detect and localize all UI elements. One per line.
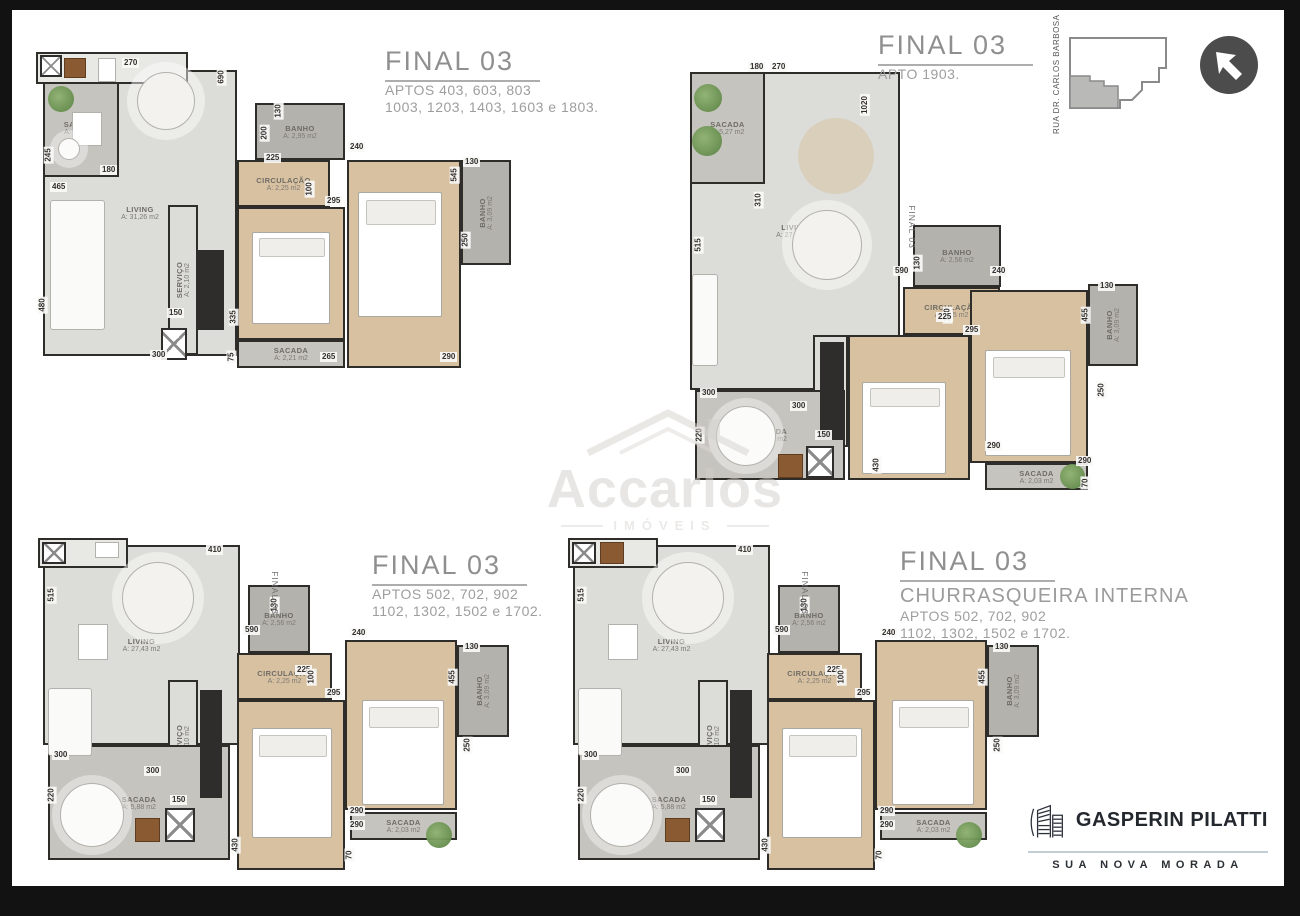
sofa-symbol: [692, 274, 718, 366]
room-area: A: 5,88 m2: [652, 804, 686, 811]
bed-symbol: [892, 700, 974, 805]
dining-symbol: [122, 562, 194, 634]
bed-symbol: [358, 192, 442, 317]
grill-symbol: [600, 542, 624, 564]
room-circulacao: CIRCULAÇÃOA: 2,25 m2: [237, 160, 330, 207]
dimension-label: 130: [274, 102, 284, 119]
room-banho: BANHOA: 2,56 m2: [913, 225, 1001, 287]
dimension-label: 410: [736, 545, 753, 555]
plan-title-feature: CHURRASQUEIRA INTERNA: [900, 585, 1189, 608]
room-area: A: 2,03 m2: [916, 827, 950, 834]
plan-title-sub: APTOS 502, 702, 902: [372, 586, 543, 603]
dimension-label: 225: [936, 312, 953, 322]
plan-title-a: FINAL 03APTOS 403, 603, 8031003, 1203, 1…: [385, 46, 599, 115]
dimension-label: 130: [463, 642, 480, 652]
dimension-label: 240: [348, 142, 365, 152]
grill-symbol: [665, 818, 690, 842]
street-label: RUA DR. CARLOS BARBOSA: [1052, 15, 1061, 134]
box-symbol: [78, 624, 108, 660]
wall-label: FINAL 03: [907, 205, 917, 249]
dimension-label: 455: [1081, 306, 1091, 323]
dimension-label: 515: [694, 236, 704, 253]
dimension-label: 70: [874, 849, 884, 862]
room-name: SACADA: [652, 795, 686, 804]
building-icon: [1028, 796, 1068, 844]
dining-symbol: [137, 72, 195, 130]
rtable-symbol: [58, 138, 80, 160]
room-name: CIRCULAÇÃO: [256, 176, 310, 185]
rtable-symbol: [590, 783, 654, 847]
dimension-label: 455: [448, 668, 458, 685]
dimension-label: 590: [893, 266, 910, 276]
dimension-label: 455: [978, 668, 988, 685]
plan-title-d: FINAL 03CHURRASQUEIRA INTERNAAPTOS 502, …: [900, 546, 1189, 641]
room-area: A: 2,25 m2: [256, 185, 310, 192]
room-banho: BANHOA: 3,09 m2: [461, 160, 511, 265]
room-area: A: 2,56 m2: [792, 620, 826, 627]
dimension-label: 300: [674, 766, 691, 776]
rtable-symbol: [60, 783, 124, 847]
dimension-label: 250: [463, 736, 473, 753]
room-area: A: 3,09 m2: [484, 674, 491, 708]
dimension-label: 70: [344, 849, 354, 862]
room-area: A: 2,56 m2: [262, 620, 296, 627]
dimension-label: 240: [350, 628, 367, 638]
room-area: A: 5,88 m2: [122, 804, 156, 811]
brand-tagline: SUA NOVA MORADA: [1028, 859, 1268, 871]
dimension-label: 130: [913, 254, 923, 271]
plant-symbol: [956, 822, 982, 848]
dimension-label: 225: [264, 153, 281, 163]
dimension-label: 295: [855, 688, 872, 698]
canvas: Accarlos IMÓVEIS RUA DR. CARLOS BARBOSA: [0, 0, 1300, 916]
dimension-label: 150: [815, 430, 832, 440]
dimension-label: 150: [700, 795, 717, 805]
plan-title-sub: APTOS 403, 603, 803: [385, 82, 599, 99]
room-area: A: 27,43 m2: [653, 646, 691, 653]
building-footprint-icon: [1068, 36, 1172, 128]
room-area: A: 3,09 m2: [1014, 674, 1021, 708]
plan-title-main: FINAL 03: [372, 550, 527, 586]
brand-name: GASPERIN PILATTI: [1076, 809, 1268, 832]
dimension-label: 295: [963, 325, 980, 335]
room-area: A: 2,95 m2: [283, 133, 317, 140]
room-circulacao: CIRCULAÇÃOA: 2,25 m2: [237, 653, 332, 700]
dimension-label: 130: [463, 157, 480, 167]
dimension-label: 515: [47, 586, 57, 603]
dimension-label: 430: [761, 836, 771, 853]
dimension-label: 290: [878, 820, 895, 830]
dimension-label: 130: [1098, 281, 1115, 291]
north-arrow-icon: [1198, 34, 1260, 96]
brand-divider: [1028, 851, 1268, 853]
dimension-label: 300: [144, 766, 161, 776]
grill-symbol: [64, 58, 86, 78]
room-area: A: 3,09 m2: [1114, 308, 1121, 342]
dimension-label: 1020: [860, 94, 870, 116]
dimension-label: 690: [217, 68, 227, 85]
room-name: SACADA: [274, 346, 308, 355]
counter-symbol: [200, 690, 222, 798]
dimension-label: 220: [47, 786, 57, 803]
dimension-label: 220: [577, 786, 587, 803]
room-name: LIVING: [123, 637, 161, 646]
dimension-label: 245: [44, 146, 54, 163]
elevator-symbol: [40, 55, 62, 77]
dimension-label: 250: [993, 736, 1003, 753]
bed-symbol: [782, 728, 862, 838]
dimension-label: 265: [320, 352, 337, 362]
dimension-label: 300: [700, 388, 717, 398]
box-symbol: [98, 58, 116, 82]
room-name: BANHO: [283, 124, 317, 133]
wall-label: FINAL 03: [800, 571, 810, 615]
dimension-label: 410: [206, 545, 223, 555]
elevator-symbol: [165, 808, 195, 842]
keyplan: RUA DR. CARLOS BARBOSA: [1046, 22, 1286, 137]
room-area: A: 3,09 m2: [487, 196, 494, 230]
brand-logo: GASPERIN PILATTI SUA NOVA MORADA: [1028, 796, 1268, 871]
grill-symbol: [778, 454, 803, 478]
dimension-label: 290: [440, 352, 457, 362]
elevator-symbol: [572, 542, 596, 564]
box-symbol: [95, 542, 119, 558]
plan-title-sub: APTO 1903.: [878, 66, 1033, 83]
dimension-label: 290: [348, 820, 365, 830]
room-banho: BANHOA: 3,09 m2: [457, 645, 509, 737]
room-name: SACADA: [1019, 469, 1053, 478]
room-name: BANHO: [1105, 308, 1114, 342]
dimension-label: 300: [582, 750, 599, 760]
room-area: A: 2,25 m2: [787, 678, 841, 685]
dimension-label: 310: [754, 191, 764, 208]
plant-symbol: [694, 84, 722, 112]
dimension-label: 270: [122, 58, 139, 68]
dimension-label: 150: [170, 795, 187, 805]
dimension-label: 180: [748, 62, 765, 72]
room-name: BANHO: [478, 196, 487, 230]
room-area: A: 2,56 m2: [940, 257, 974, 264]
rtable-symbol: [716, 406, 776, 466]
room-name: BANHO: [475, 674, 484, 708]
plan-title-sub: APTOS 502, 702, 902: [900, 608, 1189, 625]
dimension-label: 590: [773, 625, 790, 635]
grill-symbol: [135, 818, 160, 842]
elevator-symbol: [695, 808, 725, 842]
room-name: BANHO: [1005, 674, 1014, 708]
plan-title-sub: 1102, 1302, 1502 e 1702.: [372, 603, 543, 620]
room-name: SERVIÇO: [175, 262, 184, 298]
dimension-label: 75: [226, 351, 236, 364]
room-area: A: 2,21 m2: [274, 355, 308, 362]
dimension-label: 480: [38, 296, 48, 313]
room-area: A: 2,10 m2: [184, 262, 191, 298]
dimension-label: 180: [100, 165, 117, 175]
dimension-label: 270: [770, 62, 787, 72]
dimension-label: 295: [325, 688, 342, 698]
dimension-label: 150: [167, 308, 184, 318]
dimension-label: 515: [577, 586, 587, 603]
dimension-label: 335: [229, 308, 239, 325]
dimension-label: 100: [305, 180, 315, 197]
sofa-symbol: [50, 200, 105, 330]
plant-symbol: [426, 822, 452, 848]
dimension-label: 545: [450, 166, 460, 183]
dining-symbol: [652, 562, 724, 634]
room-circulacao: CIRCULAÇÃOA: 2,25 m2: [767, 653, 862, 700]
plan-title-main: FINAL 03: [900, 546, 1055, 582]
plant-symbol: [692, 126, 722, 156]
elevator-symbol: [42, 542, 66, 564]
room-area: A: 27,43 m2: [123, 646, 161, 653]
room-area: A: 2,25 m2: [257, 678, 311, 685]
dimension-label: 220: [695, 426, 705, 443]
room-area: A: 2,03 m2: [386, 827, 420, 834]
room-name: SACADA: [386, 818, 420, 827]
dimension-label: 295: [325, 196, 342, 206]
plan-title-b: FINAL 03APTO 1903.: [878, 30, 1033, 83]
counter-symbol: [730, 690, 752, 798]
dimension-label: 590: [243, 625, 260, 635]
plan-title-main: FINAL 03: [385, 46, 540, 82]
dimension-label: 130: [993, 642, 1010, 652]
plan-title-main: FINAL 03: [878, 30, 1033, 66]
dimension-label: 200: [260, 124, 270, 141]
dimension-label: 100: [837, 668, 847, 685]
bed-symbol: [252, 728, 332, 838]
dimension-label: 240: [990, 266, 1007, 276]
dimension-label: 300: [52, 750, 69, 760]
dimension-label: 290: [878, 806, 895, 816]
dimension-label: 290: [985, 441, 1002, 451]
counter-symbol: [820, 342, 844, 440]
room-name: LIVING: [121, 205, 159, 214]
dimension-label: 300: [150, 350, 167, 360]
room-name: LIVING: [653, 637, 691, 646]
bed-symbol: [362, 700, 444, 805]
sofa-symbol: [578, 688, 622, 756]
dimension-label: 290: [348, 806, 365, 816]
wall-label: FINAL 03: [270, 571, 280, 615]
bed-symbol: [252, 232, 330, 324]
counter-symbol: [198, 250, 224, 330]
dimension-label: 290: [1076, 456, 1093, 466]
plant-symbol: [48, 86, 74, 112]
dimension-label: 250: [1097, 381, 1107, 398]
room-area: A: 2,03 m2: [1019, 478, 1053, 485]
watermark-subtitle: IMÓVEIS: [545, 518, 785, 533]
elevator-symbol: [806, 446, 834, 478]
dimension-label: 430: [872, 456, 882, 473]
dining-symbol: [792, 210, 862, 280]
plan-title-sub: 1003, 1203, 1403, 1603 e 1803.: [385, 99, 599, 116]
room-banho: BANHOA: 3,09 m2: [1088, 284, 1138, 366]
dimension-label: 430: [231, 836, 241, 853]
room-banho: BANHOA: 3,09 m2: [987, 645, 1039, 737]
dimension-label: 465: [50, 182, 67, 192]
dimension-label: 70: [1080, 477, 1090, 490]
dimension-label: 100: [307, 668, 317, 685]
sofa-symbol: [48, 688, 92, 756]
room-area: A: 31,26 m2: [121, 214, 159, 221]
dimension-label: 300: [790, 401, 807, 411]
room-name: SACADA: [916, 818, 950, 827]
rug-symbol: [798, 118, 874, 194]
room-name: SACADA: [122, 795, 156, 804]
dimension-label: 240: [880, 628, 897, 638]
plan-title-c: FINAL 03APTOS 502, 702, 9021102, 1302, 1…: [372, 550, 543, 619]
room-name: BANHO: [940, 248, 974, 257]
box-symbol: [608, 624, 638, 660]
dimension-label: 250: [461, 231, 471, 248]
plan-title-sub: 1102, 1302, 1502 e 1702.: [900, 625, 1189, 642]
